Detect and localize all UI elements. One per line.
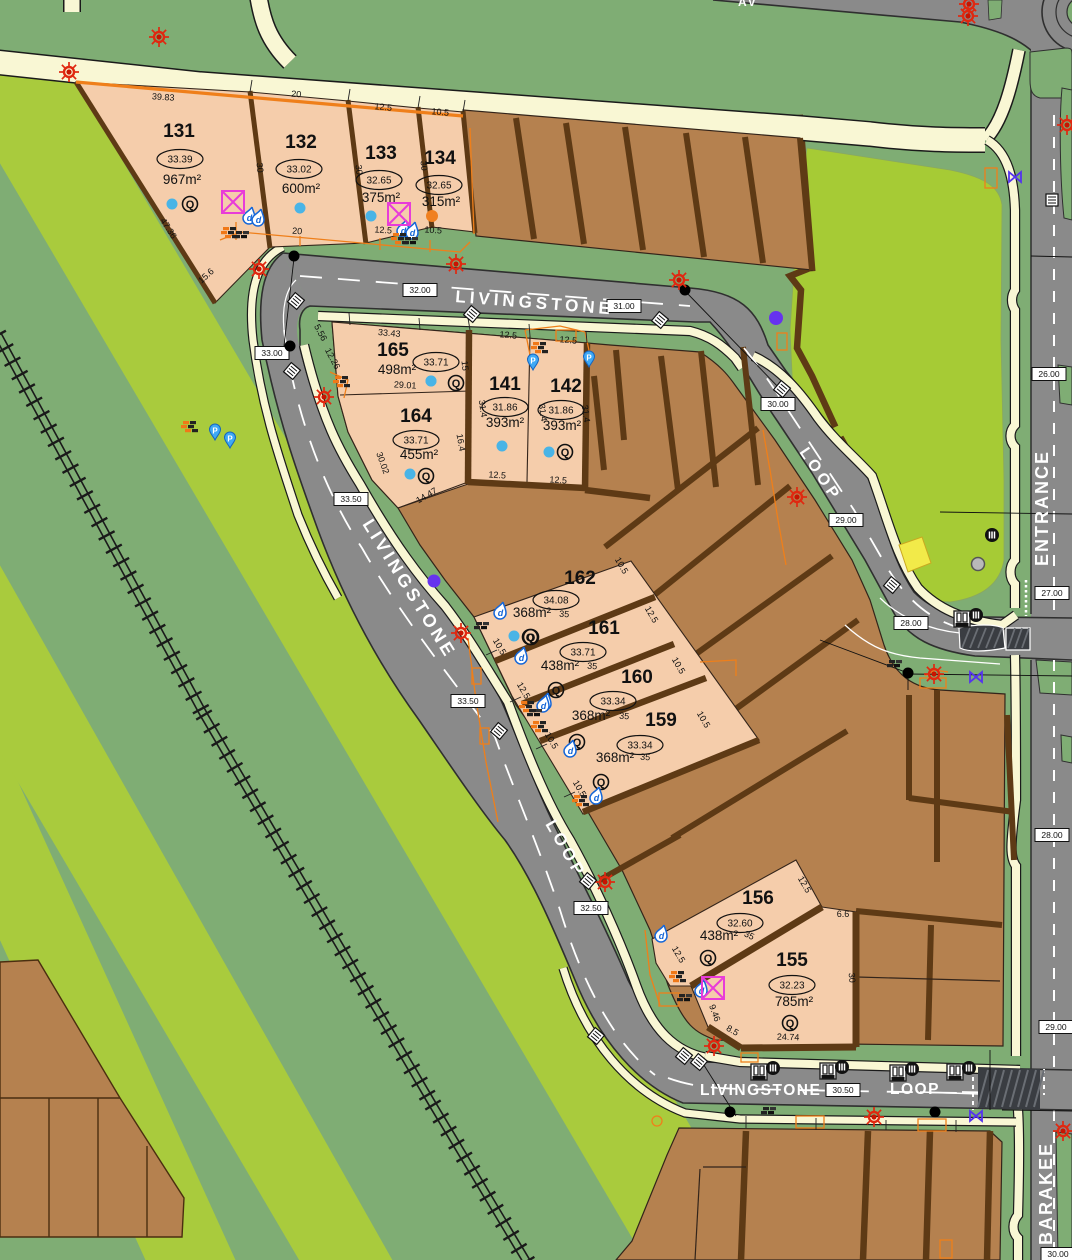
svg-text:BARAKEE: BARAKEE [1036, 1142, 1056, 1245]
svg-text:12.5: 12.5 [549, 474, 567, 485]
svg-text:438m²: 438m² [541, 658, 580, 673]
svg-text:30: 30 [418, 160, 429, 171]
svg-text:ENTRANCE: ENTRANCE [1032, 450, 1052, 566]
svg-text:967m²: 967m² [163, 172, 202, 187]
svg-text:315m²: 315m² [422, 194, 461, 209]
svg-text:133: 133 [365, 143, 397, 164]
svg-text:29.00: 29.00 [835, 515, 857, 525]
svg-text:368m²: 368m² [513, 605, 552, 620]
svg-text:20: 20 [292, 226, 303, 237]
svg-text:35: 35 [559, 609, 570, 620]
svg-text:498m²: 498m² [378, 362, 417, 377]
svg-text:30: 30 [254, 162, 265, 173]
svg-text:28.00: 28.00 [1041, 830, 1063, 840]
svg-text:29.01: 29.01 [394, 379, 417, 390]
svg-text:141: 141 [489, 374, 521, 395]
svg-text:164: 164 [400, 406, 432, 427]
svg-text:33.39: 33.39 [167, 155, 192, 166]
svg-text:33.43: 33.43 [378, 327, 401, 339]
svg-text:33.50: 33.50 [340, 494, 362, 504]
svg-text:33.34: 33.34 [600, 697, 625, 708]
svg-text:12.5: 12.5 [499, 329, 517, 340]
svg-text:32.23: 32.23 [779, 981, 804, 992]
svg-text:39.83: 39.83 [152, 91, 175, 103]
svg-text:LIVINGSTONE: LIVINGSTONE [700, 1082, 821, 1099]
svg-text:159: 159 [645, 710, 677, 731]
svg-text:155: 155 [776, 950, 808, 971]
svg-text:33.02: 33.02 [286, 165, 311, 176]
svg-text:35: 35 [619, 711, 630, 722]
svg-text:20: 20 [291, 89, 302, 100]
svg-text:32.50: 32.50 [580, 903, 602, 913]
svg-text:27.00: 27.00 [1041, 588, 1063, 598]
svg-text:455m²: 455m² [400, 447, 439, 462]
svg-text:35: 35 [587, 661, 598, 672]
svg-text:131: 131 [163, 121, 195, 142]
svg-text:28.00: 28.00 [900, 618, 922, 628]
svg-text:142: 142 [550, 376, 582, 397]
svg-text:162: 162 [564, 568, 596, 589]
svg-text:32.65: 32.65 [426, 181, 451, 192]
svg-text:156: 156 [742, 888, 774, 909]
svg-text:785m²: 785m² [775, 994, 814, 1009]
svg-text:31.86: 31.86 [548, 406, 573, 417]
svg-text:160: 160 [621, 667, 653, 688]
svg-text:33.00: 33.00 [261, 348, 283, 358]
svg-text:33.71: 33.71 [403, 436, 428, 447]
svg-text:35: 35 [640, 752, 651, 763]
svg-text:33.71: 33.71 [423, 358, 448, 369]
svg-text:33.50: 33.50 [457, 696, 479, 706]
svg-text:161: 161 [588, 618, 620, 639]
svg-text:AV: AV [738, 0, 758, 9]
svg-text:30.00: 30.00 [767, 399, 789, 409]
svg-text:29.00: 29.00 [1045, 1022, 1067, 1032]
svg-text:24.74: 24.74 [777, 1032, 800, 1043]
svg-text:393m²: 393m² [486, 415, 525, 430]
svg-text:LOOP: LOOP [890, 1081, 940, 1098]
svg-text:165: 165 [377, 340, 409, 361]
svg-text:30.50: 30.50 [832, 1085, 854, 1095]
svg-text:10.5: 10.5 [424, 224, 442, 235]
svg-text:368m²: 368m² [596, 750, 635, 765]
svg-text:6.6: 6.6 [837, 909, 850, 919]
svg-text:12.5: 12.5 [374, 101, 392, 112]
svg-text:438m²: 438m² [700, 928, 739, 943]
svg-text:31.86: 31.86 [492, 403, 517, 414]
svg-text:30: 30 [847, 972, 858, 983]
svg-text:12.5: 12.5 [488, 469, 506, 480]
svg-text:31.00: 31.00 [613, 301, 635, 311]
svg-text:30: 30 [353, 164, 364, 175]
svg-text:15: 15 [459, 360, 470, 371]
svg-text:12.5: 12.5 [374, 224, 392, 235]
svg-text:26.00: 26.00 [1038, 369, 1060, 379]
svg-text:132: 132 [285, 132, 317, 153]
svg-text:10.5: 10.5 [431, 106, 449, 117]
svg-text:32.00: 32.00 [409, 285, 431, 295]
svg-text:32.65: 32.65 [366, 176, 391, 187]
svg-text:368m²: 368m² [572, 708, 611, 723]
svg-text:600m²: 600m² [282, 181, 321, 196]
svg-text:33.71: 33.71 [570, 648, 595, 659]
svg-text:12.5: 12.5 [559, 334, 577, 345]
svg-text:30.00: 30.00 [1047, 1249, 1069, 1259]
